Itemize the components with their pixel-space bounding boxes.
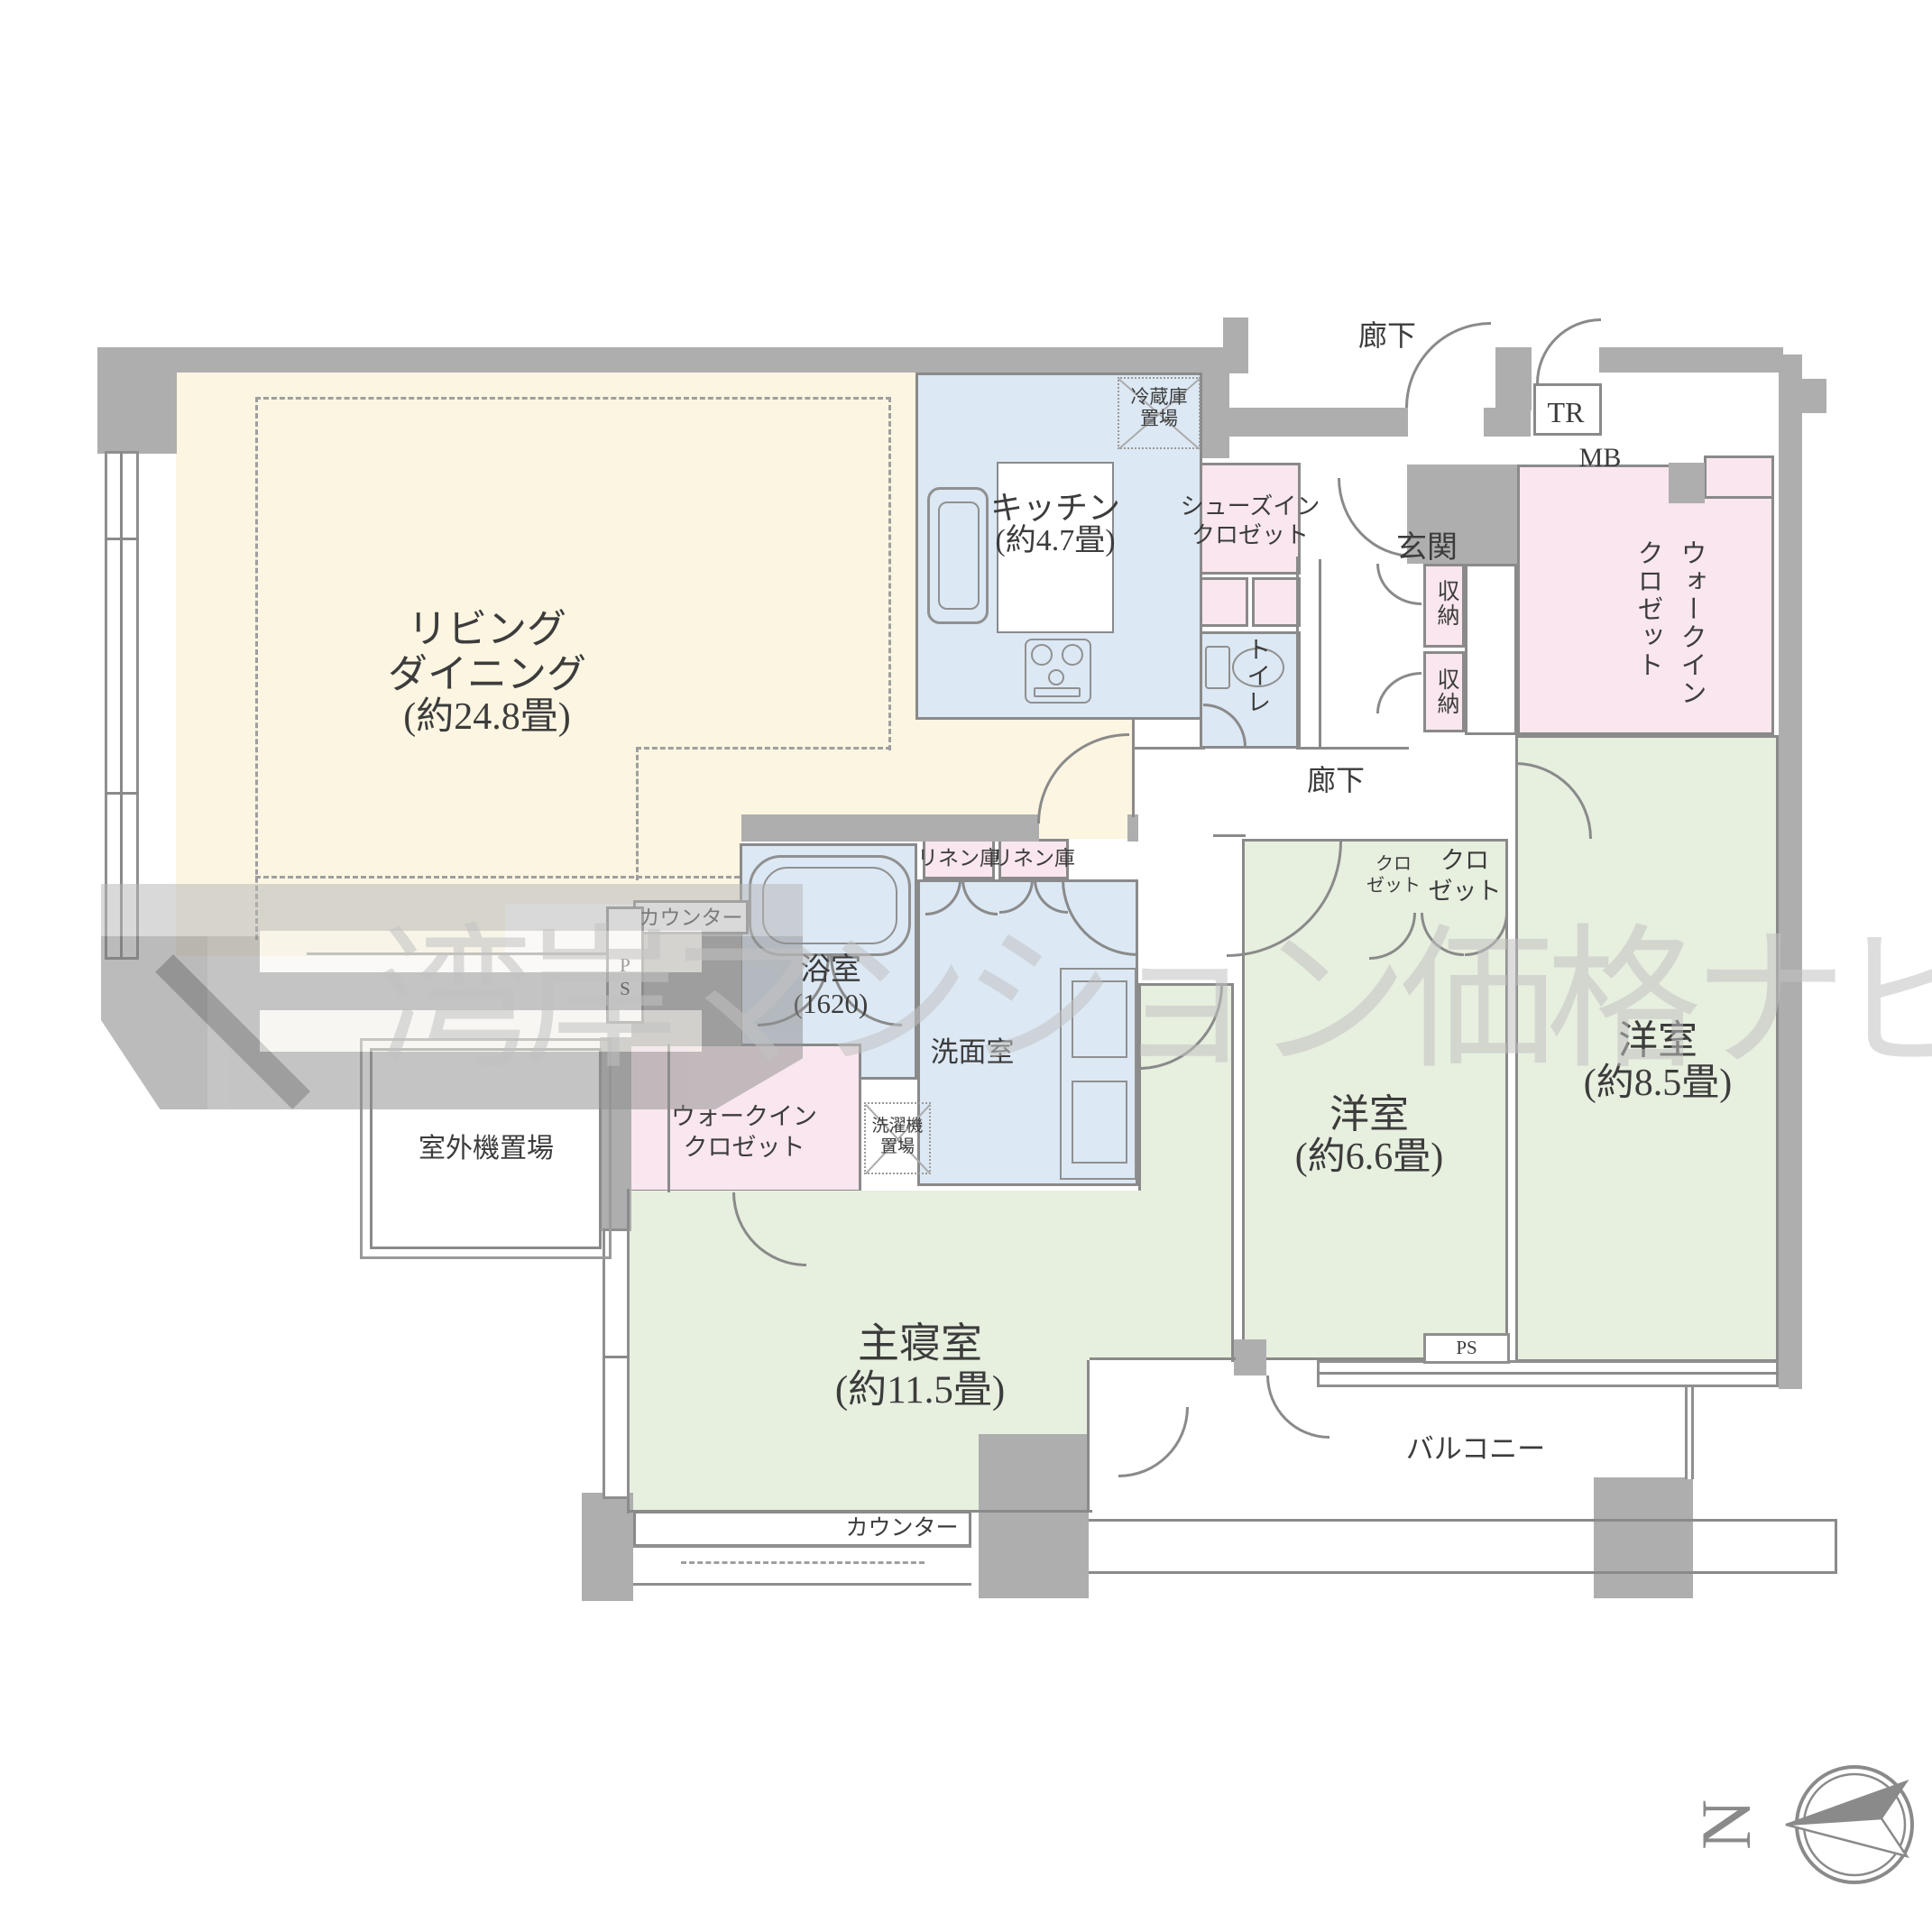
partition-line xyxy=(1296,557,1299,750)
window-mullion xyxy=(1317,1372,1779,1375)
label-wic-left: クロゼット xyxy=(684,1133,805,1162)
watermark-logo-block xyxy=(101,936,207,1109)
wall-segment xyxy=(1779,354,1802,1389)
label-western66: 洋室 xyxy=(1329,1091,1409,1139)
label-closet: クロ xyxy=(1440,846,1489,875)
label-ps-bottom: PS xyxy=(1456,1337,1477,1359)
label-wic-right-line: ウォークイン xyxy=(1672,539,1710,707)
label-living-dining: ダイニング xyxy=(388,651,586,699)
label-ps-left: P xyxy=(620,954,630,977)
wall-segment xyxy=(582,1493,633,1601)
ld-dashed-line xyxy=(636,747,639,880)
label-bath: 浴室 xyxy=(800,952,861,989)
wall-segment xyxy=(1229,408,1408,437)
room-wic-right-notch xyxy=(1704,455,1774,499)
label-master-bedroom-size: (約11.5畳) xyxy=(835,1367,1005,1414)
bathtub-inner xyxy=(762,867,897,944)
vanity-sink xyxy=(1072,980,1127,1058)
wall-segment xyxy=(741,814,1039,842)
label-corridor-top: 廊下 xyxy=(1358,318,1416,353)
wall-segment xyxy=(1223,317,1248,373)
label-closet: ゼット xyxy=(1429,877,1502,906)
label-master-bedroom: 主寝室 xyxy=(858,1319,982,1368)
window xyxy=(633,1545,971,1586)
label-fridge: 置場 xyxy=(1140,408,1178,430)
label-corridor-mid: 廊下 xyxy=(1307,763,1365,797)
compass-north-label: N xyxy=(1696,1799,1765,1850)
partition-line xyxy=(1231,985,1234,1362)
room-shoes-closet-sub xyxy=(1200,577,1248,627)
label-living-dining-size: (約24.8畳) xyxy=(403,695,570,740)
label-western85: 洋室 xyxy=(1618,1017,1697,1065)
label-closet: ゼット xyxy=(1366,875,1421,897)
balcony-rail-line xyxy=(1835,1519,1837,1574)
wall-segment xyxy=(1495,347,1532,410)
label-laundry: 置場 xyxy=(880,1137,915,1158)
door-arc-front xyxy=(1405,322,1491,408)
window-dashed-track xyxy=(681,1561,925,1564)
label-wic-right-line: クロゼット xyxy=(1629,539,1667,707)
label-linen: リネン庫 xyxy=(917,846,1000,871)
label-balcony: バルコニー xyxy=(1406,1432,1545,1466)
balcony-rail-line xyxy=(1089,1571,1837,1574)
label-outdoor-unit: 室外機置場 xyxy=(419,1133,554,1165)
wall-segment xyxy=(631,932,741,1046)
wall-segment xyxy=(1669,463,1705,503)
label-wic-right: クロゼット ウォークイン xyxy=(1629,539,1710,707)
window xyxy=(603,1228,630,1499)
label-bath-size: (1620) xyxy=(794,987,869,1020)
entrance-step-line xyxy=(1319,559,1321,749)
wall-segment xyxy=(1594,1477,1693,1598)
ld-dashed-line xyxy=(255,876,740,879)
partition-line xyxy=(1090,1357,1236,1360)
label-western66-size: (約6.6畳) xyxy=(1295,1135,1443,1180)
compass-needle-dark xyxy=(1786,1781,1907,1825)
ld-dashed-line xyxy=(255,397,891,400)
ld-dashed-line xyxy=(636,747,891,750)
stove-grill xyxy=(1034,687,1081,697)
label-meter-box: MB xyxy=(1579,442,1622,474)
label-fridge: 冷蔵庫 xyxy=(1131,386,1188,409)
wall-segment xyxy=(1202,373,1229,458)
balcony-partition xyxy=(1685,1387,1694,1479)
label-shoes-closet: シューズイン xyxy=(1181,492,1320,520)
ld-dashed-line xyxy=(255,397,258,940)
label-storage: 収納 xyxy=(1432,579,1459,628)
wall-chamfer xyxy=(155,954,310,1109)
partition-line xyxy=(1132,720,1135,817)
wall-segment xyxy=(912,347,1229,373)
wall-segment xyxy=(97,347,177,454)
room-living-dining xyxy=(176,904,505,956)
stove-knob xyxy=(1048,669,1064,685)
wall-segment xyxy=(1234,1339,1266,1375)
partition-line xyxy=(1213,834,1246,837)
wall-segment xyxy=(1801,379,1826,413)
door-arc-storage xyxy=(1376,672,1421,713)
wic-divider-line xyxy=(667,1044,670,1192)
window-mullion xyxy=(120,451,123,960)
door-arc-storage xyxy=(1376,564,1421,605)
label-shoes-closet: クロゼット xyxy=(1191,521,1309,549)
partition-line xyxy=(1087,1360,1090,1513)
ld-dashed-line xyxy=(888,397,891,750)
label-washroom: 洗面室 xyxy=(931,1035,1015,1069)
label-toilet: トイレ xyxy=(1242,637,1271,715)
label-entrance: 玄関 xyxy=(1396,530,1458,567)
wall-segment xyxy=(1484,408,1531,437)
door-arc-trunk xyxy=(1536,318,1601,383)
floor-plan: リビング ダイニング (約24.8畳) キッチン (約4.7畳) 冷蔵庫 置場 … xyxy=(0,0,1932,1932)
room-living-dining xyxy=(176,839,741,904)
label-trunk-room: TR xyxy=(1548,395,1585,429)
kitchen-sink-inner xyxy=(938,501,980,610)
label-laundry: 洗濯機 xyxy=(871,1117,923,1137)
door-arc-balcony66 xyxy=(1266,1375,1329,1439)
vanity-sink xyxy=(1072,1081,1127,1164)
wall-segment xyxy=(1599,347,1783,373)
door-arc-balcony xyxy=(1118,1407,1189,1477)
wic-hanger-strip xyxy=(1465,564,1517,735)
label-counter-living: カウンター xyxy=(639,906,743,931)
label-living-dining: リビング xyxy=(408,606,566,654)
label-linen: リネン庫 xyxy=(992,846,1075,871)
partition-line xyxy=(1135,747,1205,750)
balcony-rail-line xyxy=(1089,1519,1837,1522)
room-shoes-closet-sub xyxy=(1252,577,1301,627)
partition-line xyxy=(1299,747,1409,750)
stove-burner xyxy=(1031,644,1053,666)
label-ps-left: S xyxy=(620,978,630,1000)
label-western85-size: (約8.5畳) xyxy=(1584,1061,1732,1106)
stove-burner xyxy=(1062,644,1083,666)
label-kitchen-size: (約4.7畳) xyxy=(995,523,1115,560)
label-storage: 収納 xyxy=(1432,667,1459,716)
room-master-bedroom xyxy=(1090,1191,1234,1360)
label-counter-bedroom: カウンター xyxy=(845,1515,958,1542)
partition-line xyxy=(307,952,636,955)
toilet-tank xyxy=(1205,646,1230,689)
window-mullion xyxy=(603,1356,630,1358)
compass: N xyxy=(1696,1709,1930,1899)
label-closet: クロ xyxy=(1375,853,1412,875)
wall-segment xyxy=(97,347,912,373)
label-wic-left: ウォークイン xyxy=(671,1102,817,1131)
label-kitchen: キッチン xyxy=(990,489,1120,528)
wall-segment xyxy=(979,1434,1089,1598)
